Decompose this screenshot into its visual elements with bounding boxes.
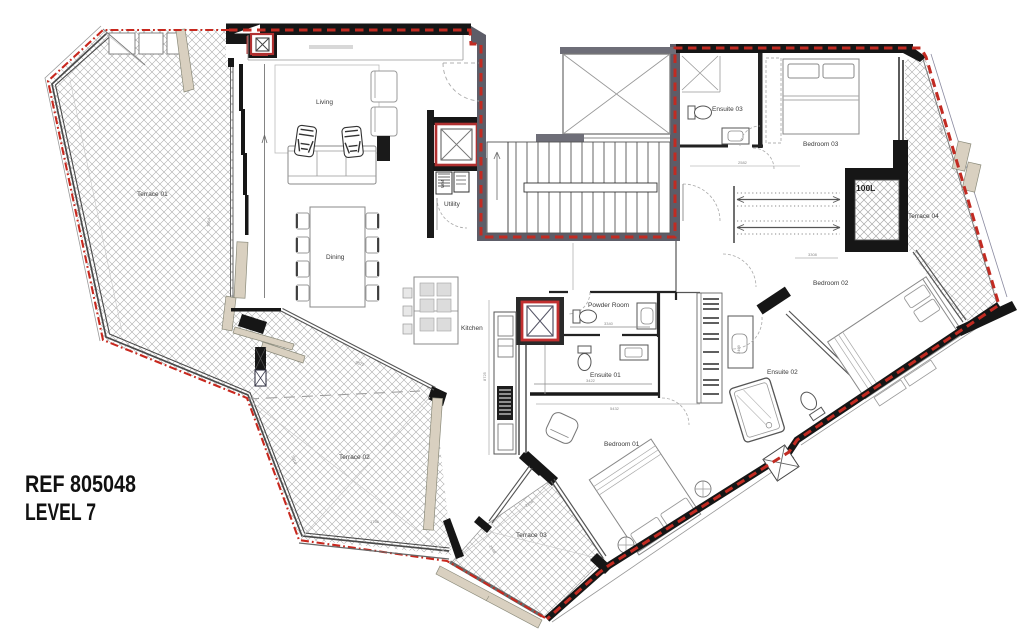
svg-text:Bedroom 03: Bedroom 03 xyxy=(803,141,839,148)
svg-text:Bedroom 02: Bedroom 02 xyxy=(813,280,849,287)
svg-text:Living: Living xyxy=(316,99,333,106)
svg-text:Bedroom 01: Bedroom 01 xyxy=(604,441,640,448)
svg-text:Dining: Dining xyxy=(326,254,345,261)
svg-text:Utility: Utility xyxy=(444,201,461,208)
svg-text:7054: 7054 xyxy=(206,217,211,227)
svg-text:LEVEL 7: LEVEL 7 xyxy=(25,499,96,526)
svg-text:2409: 2409 xyxy=(736,344,741,354)
svg-text:Terrace 02: Terrace 02 xyxy=(339,454,370,461)
svg-text:2582: 2582 xyxy=(738,160,748,165)
svg-text:Ensuite 02: Ensuite 02 xyxy=(767,369,798,376)
svg-text:Kitchen: Kitchen xyxy=(461,325,483,332)
svg-text:Ensuite 03: Ensuite 03 xyxy=(712,106,743,113)
svg-text:Powder Room: Powder Room xyxy=(588,302,629,309)
svg-text:5432: 5432 xyxy=(610,406,620,411)
svg-text:8725: 8725 xyxy=(482,371,487,381)
svg-text:REF 805048: REF 805048 xyxy=(25,471,136,498)
svg-text:3340: 3340 xyxy=(604,321,614,326)
svg-text:Terrace 04: Terrace 04 xyxy=(908,213,939,220)
svg-text:100L: 100L xyxy=(856,183,875,193)
svg-text:3422: 3422 xyxy=(586,378,596,383)
svg-text:1756: 1756 xyxy=(370,519,380,524)
svg-text:Terrace 01: Terrace 01 xyxy=(137,191,168,198)
svg-text:WM: WM xyxy=(440,180,445,188)
svg-text:Terrace 03: Terrace 03 xyxy=(516,532,547,539)
svg-text:3308: 3308 xyxy=(808,252,818,257)
